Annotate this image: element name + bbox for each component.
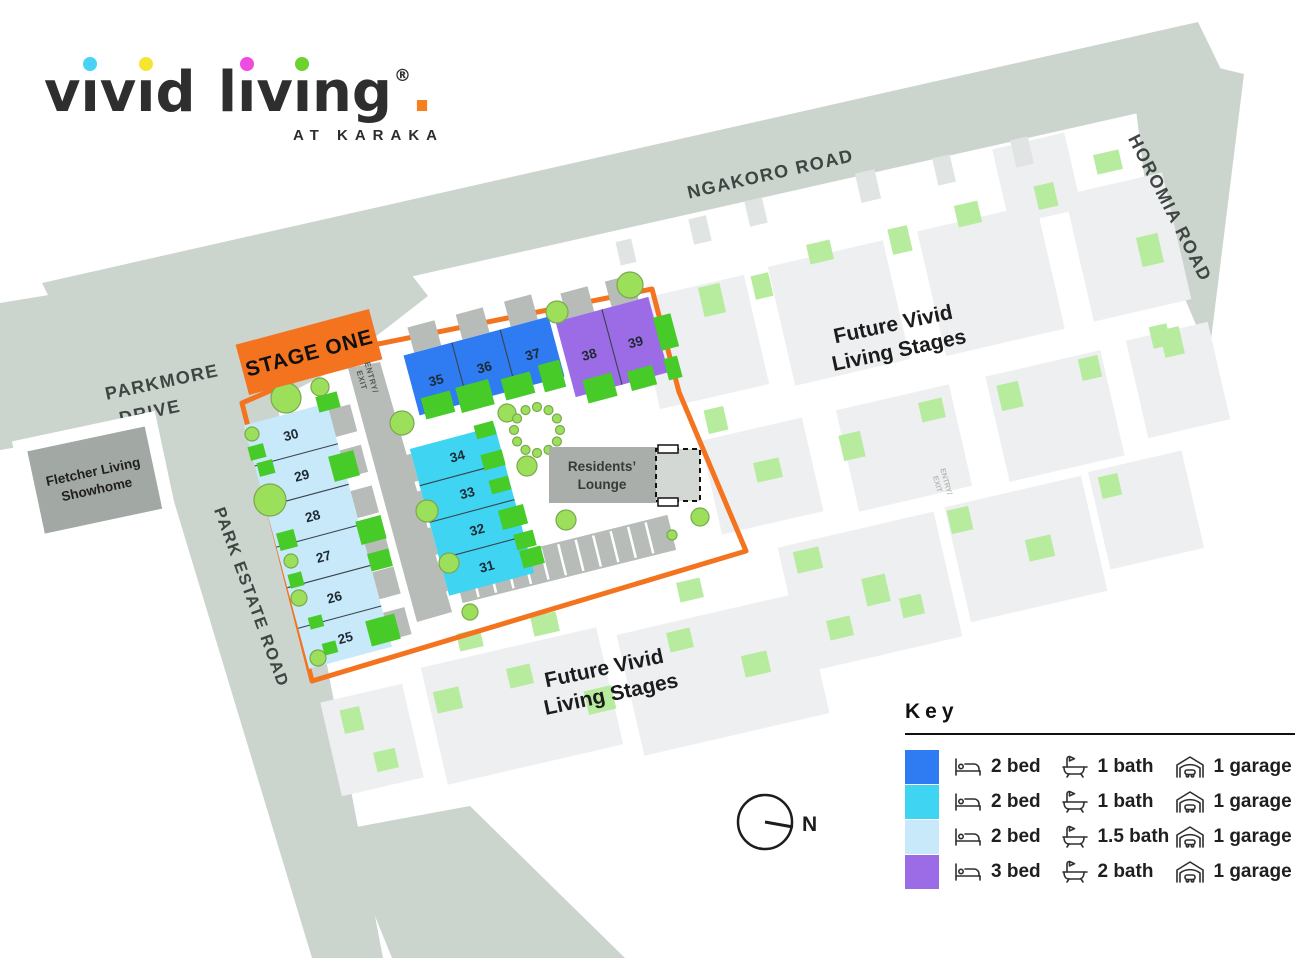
key-color-swatch: [905, 820, 939, 854]
garage-icon: [1175, 790, 1205, 814]
logo-wordmark: vıvıdlıvıng®.: [44, 58, 454, 125]
bath-icon: [1061, 825, 1089, 849]
key-row-purple: 3 bed 2 bath 1 garage: [905, 854, 1295, 889]
logo-letter: v: [256, 61, 293, 125]
bed-icon: [953, 791, 983, 813]
key-bath-label: 1 bath: [1097, 756, 1153, 778]
logo-letter: ı: [237, 61, 256, 125]
garage-icon: [1175, 860, 1205, 884]
svg-text:Residents’: Residents’: [568, 459, 636, 474]
key-row-light-blue: 2 bed 1.5 bath 1 garage: [905, 819, 1295, 854]
logo-dot-cyan: [83, 57, 97, 71]
bath-icon: [1061, 755, 1089, 779]
logo-orange-period: .: [411, 58, 433, 125]
bed-icon: [953, 756, 983, 778]
key-bed-label: 3 bed: [991, 861, 1041, 883]
svg-text:Lounge: Lounge: [578, 477, 627, 492]
logo-letter: v: [44, 61, 81, 125]
key-garage-label: 1 garage: [1213, 756, 1291, 778]
road-wedge-shape: [340, 806, 625, 958]
logo-tagline: AT KARAKA: [44, 127, 454, 144]
north-compass: N: [738, 795, 817, 849]
key-color-swatch: [905, 785, 939, 819]
garage-icon: [1175, 755, 1205, 779]
key-title: Key: [905, 700, 1295, 724]
logo-letter: ı: [293, 61, 312, 125]
key-bed-label: 2 bed: [991, 756, 1041, 778]
bath-icon: [1061, 860, 1089, 884]
key-garage-label: 1 garage: [1213, 826, 1291, 848]
bath-icon: [1061, 790, 1089, 814]
registered-trademark: ®: [394, 67, 411, 87]
bed-icon: [953, 826, 983, 848]
logo-letter: ı: [81, 61, 100, 125]
key-panel: Key 2 bed 1 bath 1 garage 2 bed 1 bath 1…: [905, 700, 1295, 889]
logo-letter: g: [352, 61, 392, 125]
key-bed-label: 2 bed: [991, 791, 1041, 813]
logo-letter: l: [218, 61, 237, 125]
logo-letter: n: [312, 61, 352, 125]
logo-dot-green: [295, 57, 309, 71]
key-bed-label: 2 bed: [991, 826, 1041, 848]
logo-letter: d: [155, 61, 195, 125]
logo-dot-magenta: [240, 57, 254, 71]
site-map-canvas: NGAKORO ROAD HOROMIA ROAD PARKMORE DRIVE…: [0, 0, 1304, 960]
logo-letter: v: [100, 61, 137, 125]
key-color-swatch: [905, 750, 939, 784]
residents-lounge: Residents’ Lounge: [549, 445, 700, 506]
key-bath-label: 1 bath: [1097, 791, 1153, 813]
key-color-swatch: [905, 855, 939, 889]
vivid-living-logo: vıvıdlıvıng®. AT KARAKA: [44, 58, 454, 144]
garage-icon: [1175, 825, 1205, 849]
logo-letter: ı: [136, 61, 155, 125]
key-row-blue: 2 bed 1 bath 1 garage: [905, 749, 1295, 784]
key-bath-label: 1.5 bath: [1097, 826, 1169, 848]
key-row-cyan: 2 bed 1 bath 1 garage: [905, 784, 1295, 819]
key-divider: [905, 733, 1295, 735]
bed-icon: [953, 861, 983, 883]
key-bath-label: 2 bath: [1097, 861, 1153, 883]
key-garage-label: 1 garage: [1213, 791, 1291, 813]
key-garage-label: 1 garage: [1213, 861, 1291, 883]
compass-north-label: N: [802, 813, 817, 836]
logo-dot-yellow: [139, 57, 153, 71]
